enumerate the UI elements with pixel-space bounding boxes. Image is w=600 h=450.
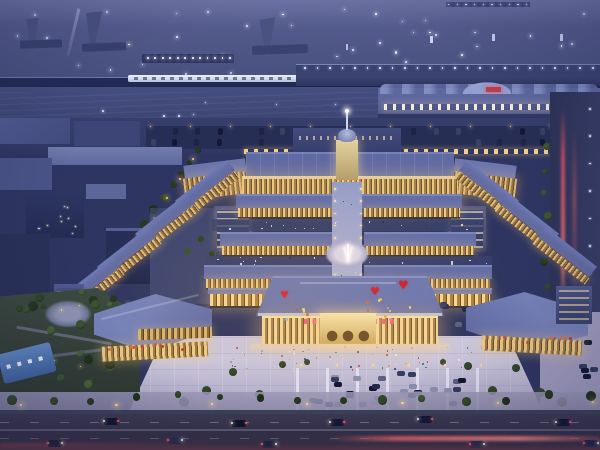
blue-vignette [0,0,600,450]
aerial-night-plaza-photo: ♥♥♥ [0,0,600,450]
region-color-grade [0,0,600,450]
